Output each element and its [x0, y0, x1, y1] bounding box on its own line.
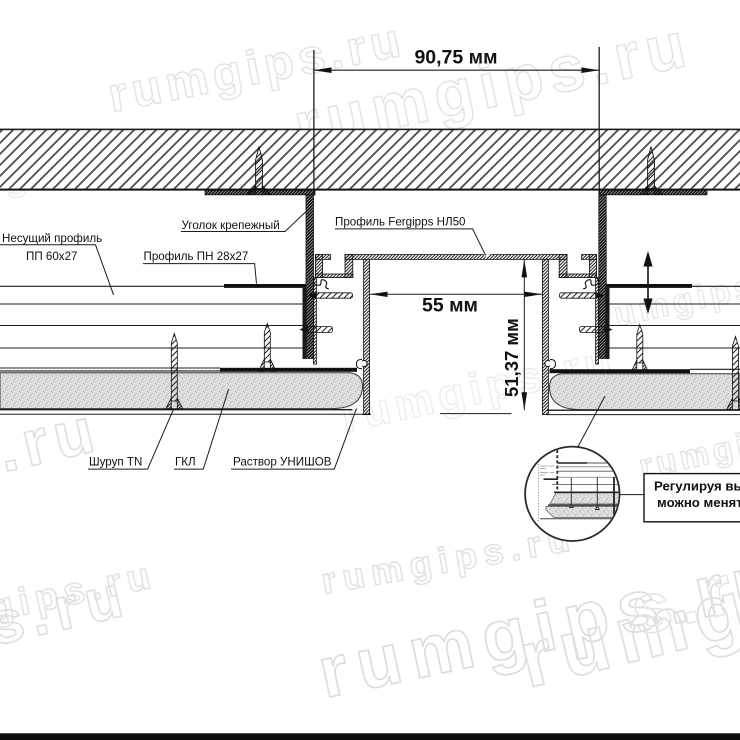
svg-text:ГКЛ: ГКЛ	[175, 455, 196, 468]
svg-text:Уголок крепежный: Уголок крепежный	[182, 219, 280, 232]
svg-text:Раствор УНИШОВ: Раствор УНИШОВ	[233, 455, 332, 468]
svg-text:можно менять высоту: можно менять высоту	[657, 495, 740, 510]
svg-text:Профиль Fergipps НЛ50: Профиль Fergipps НЛ50	[335, 215, 465, 228]
svg-text:ПП 60х27: ПП 60х27	[26, 250, 77, 263]
svg-text:Несущий профиль: Несущий профиль	[2, 232, 102, 245]
svg-text:51,37 мм: 51,37 мм	[501, 318, 522, 397]
svg-text:Шуруп TN: Шуруп TN	[89, 455, 142, 468]
svg-text:55 мм: 55 мм	[422, 295, 478, 317]
svg-text:90,75 мм: 90,75 мм	[414, 47, 497, 69]
svg-text:Регулируя высоту: Регулируя высоту	[654, 478, 740, 493]
svg-text:Профиль ПН 28х27: Профиль ПН 28х27	[144, 250, 249, 263]
